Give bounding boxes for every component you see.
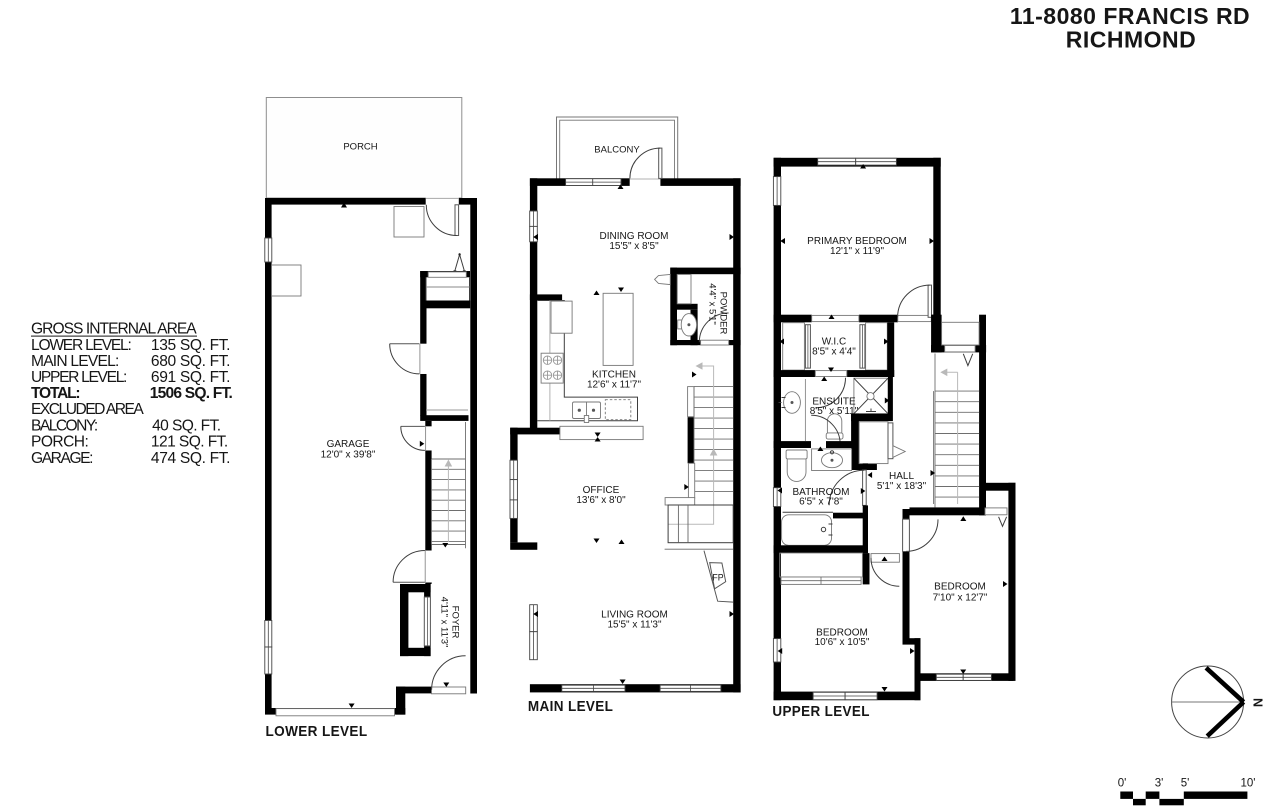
svg-text:GROSS INTERNAL AREA: GROSS INTERNAL AREA — [31, 321, 197, 338]
svg-text:4'11" x 11'3": 4'11" x 11'3" — [439, 597, 450, 648]
svg-text:15'5" x 8'5": 15'5" x 8'5" — [609, 241, 659, 252]
svg-text:11-8080 FRANCIS RD: 11-8080 FRANCIS RD — [1010, 3, 1250, 29]
svg-text:12'6" x 11'7": 12'6" x 11'7" — [587, 380, 642, 391]
svg-text:GARAGE: GARAGE — [327, 439, 370, 450]
svg-text:PORCH:: PORCH: — [31, 434, 89, 451]
svg-text:1506 SQ. FT.: 1506 SQ. FT. — [150, 385, 233, 402]
svg-text:12'0" x 39'8": 12'0" x 39'8" — [321, 450, 376, 461]
svg-text:MAIN LEVEL: MAIN LEVEL — [528, 698, 613, 715]
svg-text:10'6" x 10'5": 10'6" x 10'5" — [815, 637, 870, 648]
svg-text:LOWER LEVEL: LOWER LEVEL — [266, 723, 368, 740]
svg-text:6'5" x 7'8": 6'5" x 7'8" — [799, 497, 843, 508]
svg-text:15'5" x 11'3": 15'5" x 11'3" — [607, 620, 662, 631]
svg-text:12'1" x 11'9": 12'1" x 11'9" — [830, 246, 885, 257]
svg-text:0': 0' — [1118, 778, 1127, 790]
svg-text:8'5" x 5'11": 8'5" x 5'11" — [810, 406, 859, 417]
svg-text:5': 5' — [1181, 778, 1190, 790]
svg-text:121 SQ. FT.: 121 SQ. FT. — [151, 434, 228, 451]
svg-text:13'6" x 8'0": 13'6" x 8'0" — [576, 495, 626, 506]
svg-text:FP: FP — [712, 573, 723, 583]
svg-text:UPPER LEVEL:: UPPER LEVEL: — [31, 369, 127, 386]
svg-text:EXCLUDED AREA: EXCLUDED AREA — [31, 401, 144, 418]
svg-text:135 SQ. FT.: 135 SQ. FT. — [151, 337, 231, 354]
svg-text:474 SQ. FT.: 474 SQ. FT. — [151, 450, 231, 467]
svg-text:MAIN LEVEL:: MAIN LEVEL: — [31, 353, 119, 370]
svg-text:40 SQ. FT.: 40 SQ. FT. — [152, 418, 221, 435]
svg-text:UPPER LEVEL: UPPER LEVEL — [772, 703, 869, 720]
svg-text:N: N — [1251, 698, 1265, 707]
svg-text:BALCONY: BALCONY — [594, 145, 640, 156]
svg-text:8'5" x 4'4": 8'5" x 4'4" — [812, 347, 856, 358]
svg-text:5'1" x 18'3": 5'1" x 18'3" — [877, 481, 927, 492]
svg-text:BALCONY:: BALCONY: — [31, 418, 98, 435]
svg-text:GARAGE:: GARAGE: — [31, 450, 94, 467]
svg-text:3': 3' — [1155, 778, 1164, 790]
svg-text:10': 10' — [1241, 778, 1256, 790]
svg-text:POWDER: POWDER — [718, 292, 729, 335]
svg-text:TOTAL:: TOTAL: — [31, 385, 81, 402]
svg-text:680 SQ. FT.: 680 SQ. FT. — [151, 353, 231, 370]
svg-text:BEDROOM: BEDROOM — [934, 582, 986, 593]
svg-text:4'4" x 5'1": 4'4" x 5'1" — [707, 283, 718, 325]
svg-text:PORCH: PORCH — [343, 142, 377, 153]
svg-text:7'10" x 12'7": 7'10" x 12'7" — [933, 593, 988, 604]
svg-text:RICHMOND: RICHMOND — [1066, 27, 1197, 53]
svg-text:LOWER LEVEL:: LOWER LEVEL: — [31, 337, 132, 354]
svg-text:691 SQ. FT.: 691 SQ. FT. — [151, 369, 231, 386]
svg-text:FOYER: FOYER — [450, 606, 461, 639]
